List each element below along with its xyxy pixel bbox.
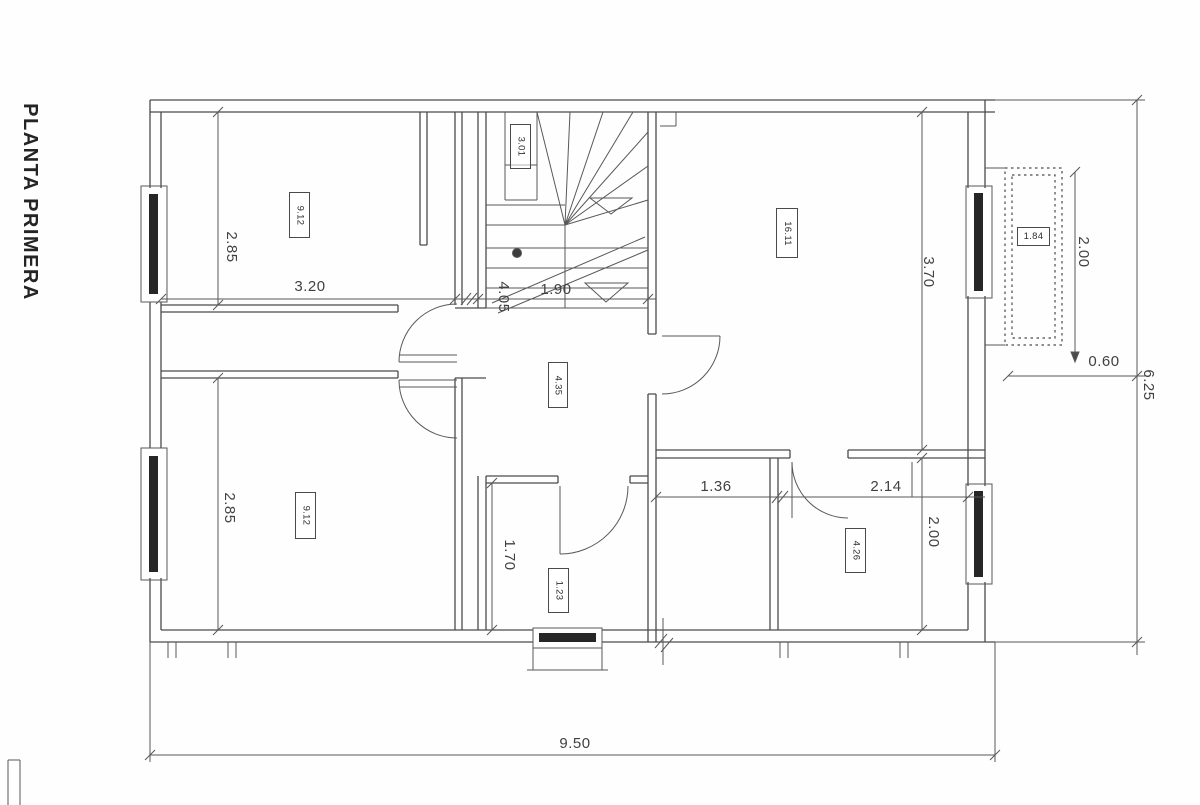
door-top-right-room [662,336,720,394]
room-label-top-right: 16.11 [776,208,798,258]
page-edge-fragment [8,760,20,805]
dim-top-left-room-height: 2.85 [223,221,239,273]
dim-overall-width: 9.50 [549,736,601,752]
dim-bottom-left-room-height: 2.85 [221,482,237,534]
room-label-bath-right: 4.26 [845,528,866,573]
dim-top-left-room-width: 3.20 [284,279,336,295]
door-center-bath [560,486,628,554]
dim-balcony-offset: 0.60 [1078,354,1130,370]
dim-center-bath-height: 1.70 [501,529,517,581]
stair-treads-left [486,205,565,225]
page-background: PLANTA PRIMERA 2.85 3.20 4.05 1.90 3.70 … [0,0,1200,805]
doors [399,304,848,554]
stair-winder-treads [537,112,648,225]
dim-right-bath-height: 2.00 [925,506,941,558]
room-label-bedroom-top-left: 9.12 [289,192,310,238]
stair-newel-post [513,249,522,258]
dim-top-right-room-height: 3.70 [920,246,936,298]
room-label-bath-center: 1.23 [548,568,569,613]
dim-balcony-height: 2.00 [1075,226,1091,278]
dim-right-bath-width: 2.14 [860,479,912,495]
dim-stair-width: 1.90 [530,282,582,298]
drawing-title: PLANTA PRIMERA [17,93,43,311]
door-right-bath [792,462,848,518]
misc-marks [8,618,908,805]
room-label-hall: 4.35 [548,362,568,408]
room-label-stair-closet: 3.01 [510,124,531,169]
dim-overall-height: 6.25 [1140,359,1156,411]
dim-hall-depth: 4.05 [495,271,511,323]
room-label-bedroom-bottom-left: 9.12 [295,492,316,539]
door-bottom-left-room [399,380,457,438]
door-top-left-room [399,304,457,362]
balcony-railing [985,168,1062,345]
room-label-balcony: 1.84 [1017,227,1050,246]
pier-marks [168,642,908,658]
dim-corridor-width: 1.36 [690,479,742,495]
floor-plan-linework [0,0,1200,805]
